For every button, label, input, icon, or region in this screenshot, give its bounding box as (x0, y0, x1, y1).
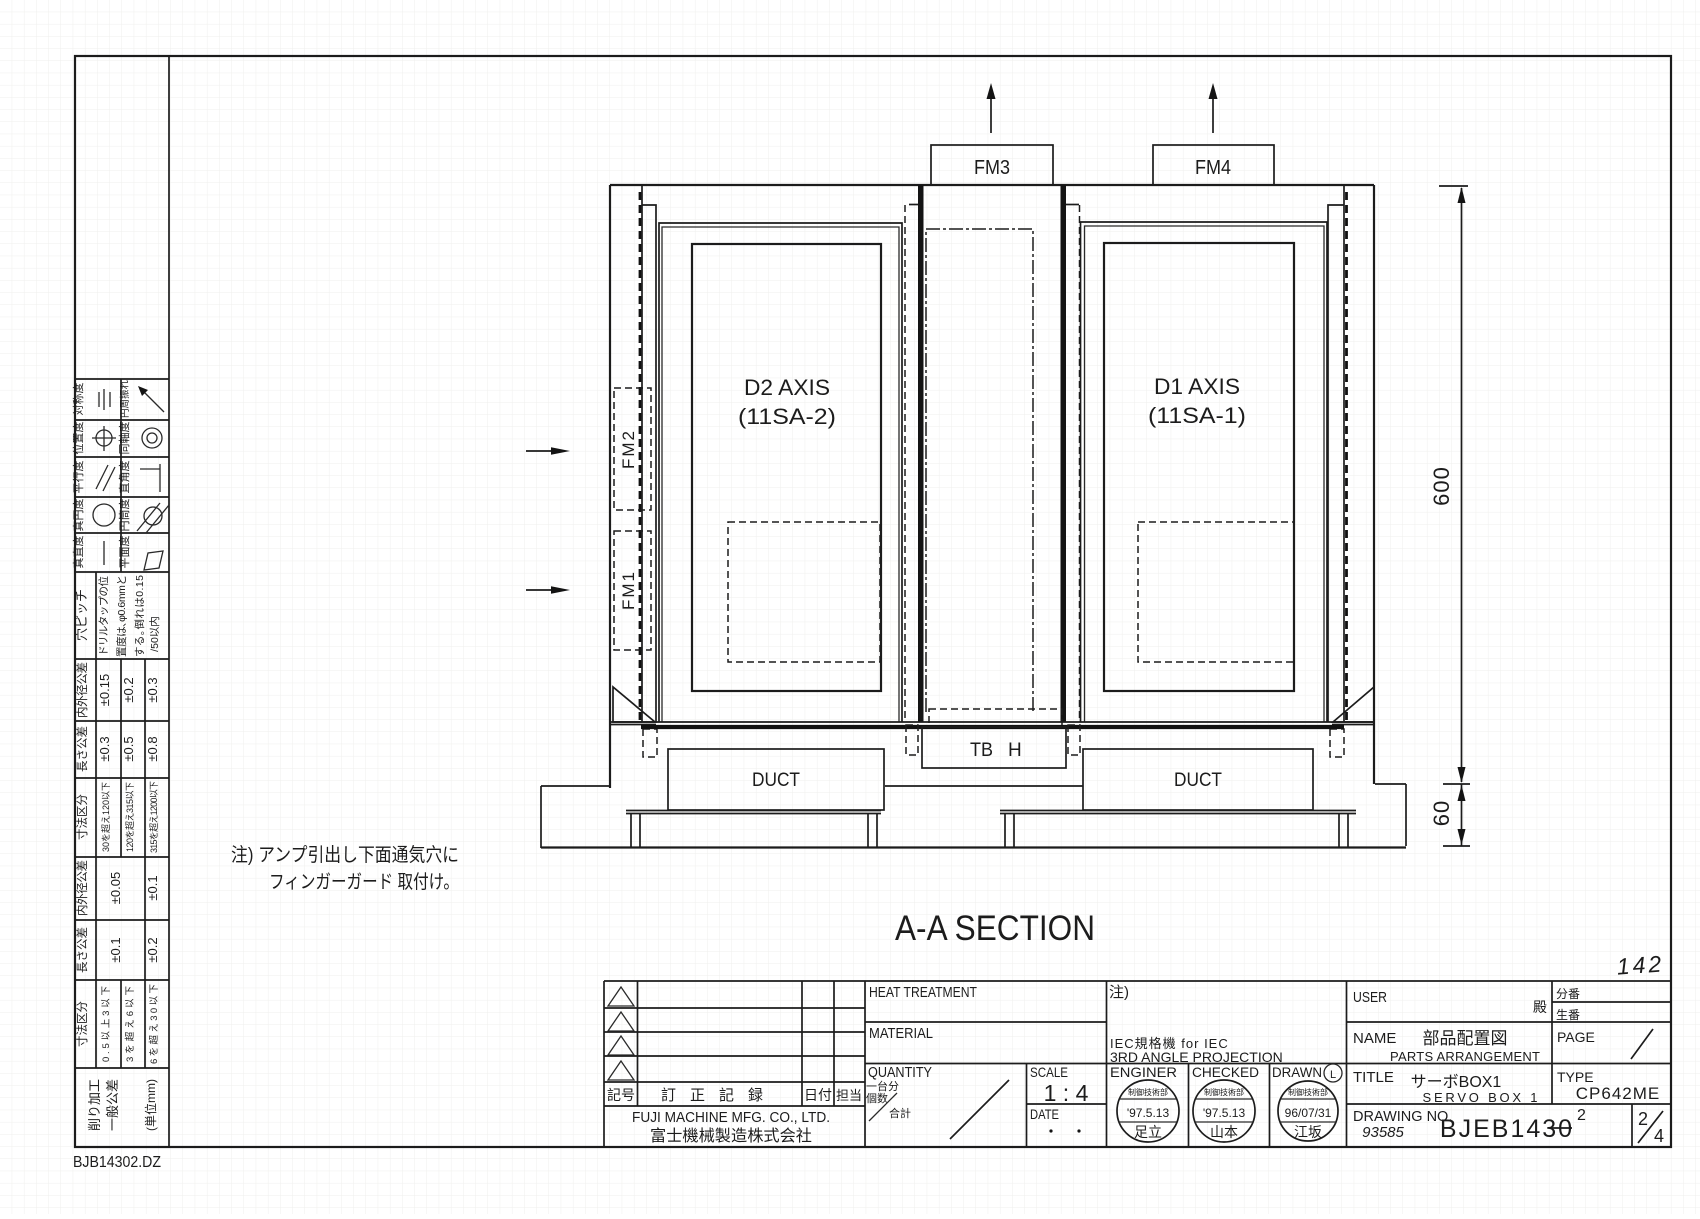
svg-text:L: L (1330, 1069, 1336, 1081)
svg-text:3RD ANGLE PROJECTION: 3RD ANGLE PROJECTION (1110, 1049, 1283, 1065)
svg-text:SCALE: SCALE (1030, 1064, 1068, 1080)
svg-text:2: 2 (1638, 1109, 1648, 1129)
svg-text:注) アンプ引出し下面通気穴に: 注) アンプ引出し下面通気穴に (231, 844, 459, 866)
svg-text:同軸度: 同軸度 (117, 422, 131, 455)
svg-text:QUANTITY: QUANTITY (868, 1064, 932, 1081)
svg-text:'97.5.13: '97.5.13 (1127, 1106, 1170, 1120)
svg-text:H: H (1008, 740, 1022, 761)
svg-text:±0.2: ±0.2 (121, 677, 136, 702)
svg-text:部品配置図: 部品配置図 (1423, 1029, 1508, 1048)
svg-text:平面度: 平面度 (117, 536, 131, 569)
svg-text:±0.2: ±0.2 (145, 937, 160, 962)
svg-text:生番: 生番 (1556, 1008, 1580, 1022)
svg-text:6を超え30以下: 6を超え30以下 (148, 984, 160, 1064)
svg-text:A-A SECTION: A-A SECTION (895, 909, 1095, 948)
svg-text:内外径公差: 内外径公差 (75, 860, 89, 916)
svg-text:長さ公差: 長さ公差 (75, 726, 89, 772)
svg-text:サーボBOX1: サーボBOX1 (1411, 1073, 1502, 1091)
svg-text:個数: 個数 (866, 1092, 888, 1105)
svg-text:円周振れ: 円周振れ (119, 380, 131, 419)
svg-text:寸法区分: 寸法区分 (75, 1001, 89, 1047)
svg-text:BJB14302.DZ: BJB14302.DZ (73, 1154, 161, 1171)
svg-text:真直度: 真直度 (71, 536, 85, 569)
svg-text:FM1: FM1 (619, 570, 638, 610)
svg-text:±0.1: ±0.1 (145, 875, 160, 900)
svg-text:PAGE: PAGE (1557, 1029, 1595, 1045)
svg-text:円筒度: 円筒度 (117, 499, 131, 532)
svg-text:内外径公差: 内外径公差 (75, 662, 89, 718)
svg-text:制御技術部: 制御技術部 (1128, 1087, 1168, 1097)
svg-text:一般公差: 一般公差 (105, 1079, 120, 1131)
svg-text:富士機械製造株式会社: 富士機械製造株式会社 (650, 1127, 812, 1145)
svg-text:±0.3: ±0.3 (97, 736, 112, 761)
svg-text:合計: 合計 (889, 1106, 911, 1120)
svg-text:足立: 足立 (1134, 1124, 1162, 1140)
svg-text:ドリルタップの位: ドリルタップの位 (97, 576, 110, 657)
svg-text:注): 注) (1109, 984, 1129, 1001)
svg-text:ENGINER: ENGINER (1110, 1064, 1177, 1080)
svg-text:FM4: FM4 (1195, 157, 1231, 179)
svg-text:対称度: 対称度 (71, 383, 85, 416)
svg-text:120を超え315以下: 120を超え315以下 (124, 782, 135, 852)
svg-text:2: 2 (1577, 1107, 1586, 1124)
svg-text:D1 AXIS: D1 AXIS (1154, 374, 1240, 399)
svg-text:削り加工: 削り加工 (87, 1079, 102, 1131)
svg-text:±0.05: ±0.05 (108, 872, 123, 904)
svg-text:真円度: 真円度 (71, 499, 85, 532)
svg-text:TYPE: TYPE (1557, 1069, 1594, 1085)
svg-text:殿: 殿 (1533, 999, 1547, 1015)
svg-text:4: 4 (1654, 1126, 1664, 1146)
svg-text:制御技術部: 制御技術部 (1288, 1087, 1328, 1097)
svg-text:平行度: 平行度 (71, 461, 85, 494)
svg-text:(単位mm): (単位mm) (143, 1079, 158, 1131)
svg-text:TITLE: TITLE (1353, 1069, 1394, 1086)
svg-text:/50以内: /50以内 (148, 616, 161, 652)
svg-text:±0.15: ±0.15 (97, 674, 112, 706)
svg-text:DUCT: DUCT (1174, 769, 1222, 791)
svg-text:±0.1: ±0.1 (108, 937, 123, 962)
svg-text:寸法区分: 寸法区分 (75, 794, 89, 840)
svg-text:±0.5: ±0.5 (121, 736, 136, 761)
svg-text:FM3: FM3 (974, 157, 1010, 179)
svg-text:NAME: NAME (1353, 1030, 1396, 1047)
svg-text:600: 600 (1429, 466, 1454, 506)
svg-text:する｡倒れは0.15: する｡倒れは0.15 (134, 575, 146, 657)
svg-text:山本: 山本 (1210, 1124, 1238, 1140)
svg-text:HEAT TREATMENT: HEAT TREATMENT (869, 984, 977, 1001)
svg-text:1 : 4: 1 : 4 (1044, 1080, 1089, 1106)
svg-text:DRAWN: DRAWN (1272, 1064, 1322, 1080)
svg-text:位置度: 位置度 (71, 422, 85, 455)
svg-text:'97.5.13: '97.5.13 (1203, 1106, 1246, 1120)
svg-text:BJEB1430: BJEB1430 (1440, 1115, 1574, 1143)
svg-text:96/07/31: 96/07/31 (1285, 1106, 1332, 1120)
svg-text:142: 142 (1616, 950, 1665, 979)
svg-text:FUJI MACHINE MFG. CO., LTD.: FUJI MACHINE MFG. CO., LTD. (632, 1109, 830, 1126)
svg-text:93585: 93585 (1362, 1124, 1404, 1141)
svg-text:60: 60 (1429, 800, 1454, 826)
svg-text:長さ公差: 長さ公差 (75, 927, 89, 973)
svg-text:30を超え120以下: 30を超え120以下 (100, 782, 111, 852)
svg-text:分番: 分番 (1556, 987, 1580, 1001)
svg-text:直角度: 直角度 (117, 461, 131, 494)
svg-text:±0.8: ±0.8 (145, 736, 160, 761)
svg-text:担当: 担当 (836, 1088, 862, 1103)
svg-text:穴ピッチ: 穴ピッチ (74, 589, 89, 641)
svg-text:FM2: FM2 (619, 429, 638, 469)
svg-text:日付: 日付 (804, 1087, 832, 1103)
svg-text:置度は､φ0.6mmと: 置度は､φ0.6mmと (115, 575, 128, 657)
svg-text:DRAWING NO.: DRAWING NO. (1353, 1109, 1452, 1125)
svg-text:±0.3: ±0.3 (145, 677, 160, 702)
svg-text:CHECKED: CHECKED (1192, 1064, 1259, 1080)
svg-text:制御技術部: 制御技術部 (1204, 1087, 1244, 1097)
svg-text:訂正記録: 訂正記録 (661, 1087, 777, 1104)
svg-text:USER: USER (1353, 989, 1387, 1006)
svg-text:フィンガーガード 取付け。: フィンガーガード 取付け。 (269, 871, 459, 893)
svg-text:TB: TB (970, 740, 993, 761)
svg-text:CP642ME: CP642ME (1576, 1084, 1660, 1103)
svg-text:一台分: 一台分 (866, 1079, 899, 1093)
svg-text:DUCT: DUCT (752, 769, 800, 791)
svg-text:江坂: 江坂 (1294, 1124, 1322, 1140)
svg-text:PARTS ARRANGEMENT: PARTS ARRANGEMENT (1390, 1049, 1540, 1064)
svg-text:記号: 記号 (607, 1087, 635, 1103)
svg-text:(11SA-1): (11SA-1) (1148, 403, 1246, 428)
svg-text:315を超え1200以下: 315を超え1200以下 (148, 781, 159, 853)
svg-text:DATE: DATE (1030, 1106, 1059, 1122)
svg-text:MATERIAL: MATERIAL (869, 1025, 933, 1042)
svg-text:(11SA-2): (11SA-2) (738, 404, 836, 429)
svg-text:D2 AXIS: D2 AXIS (744, 375, 830, 400)
